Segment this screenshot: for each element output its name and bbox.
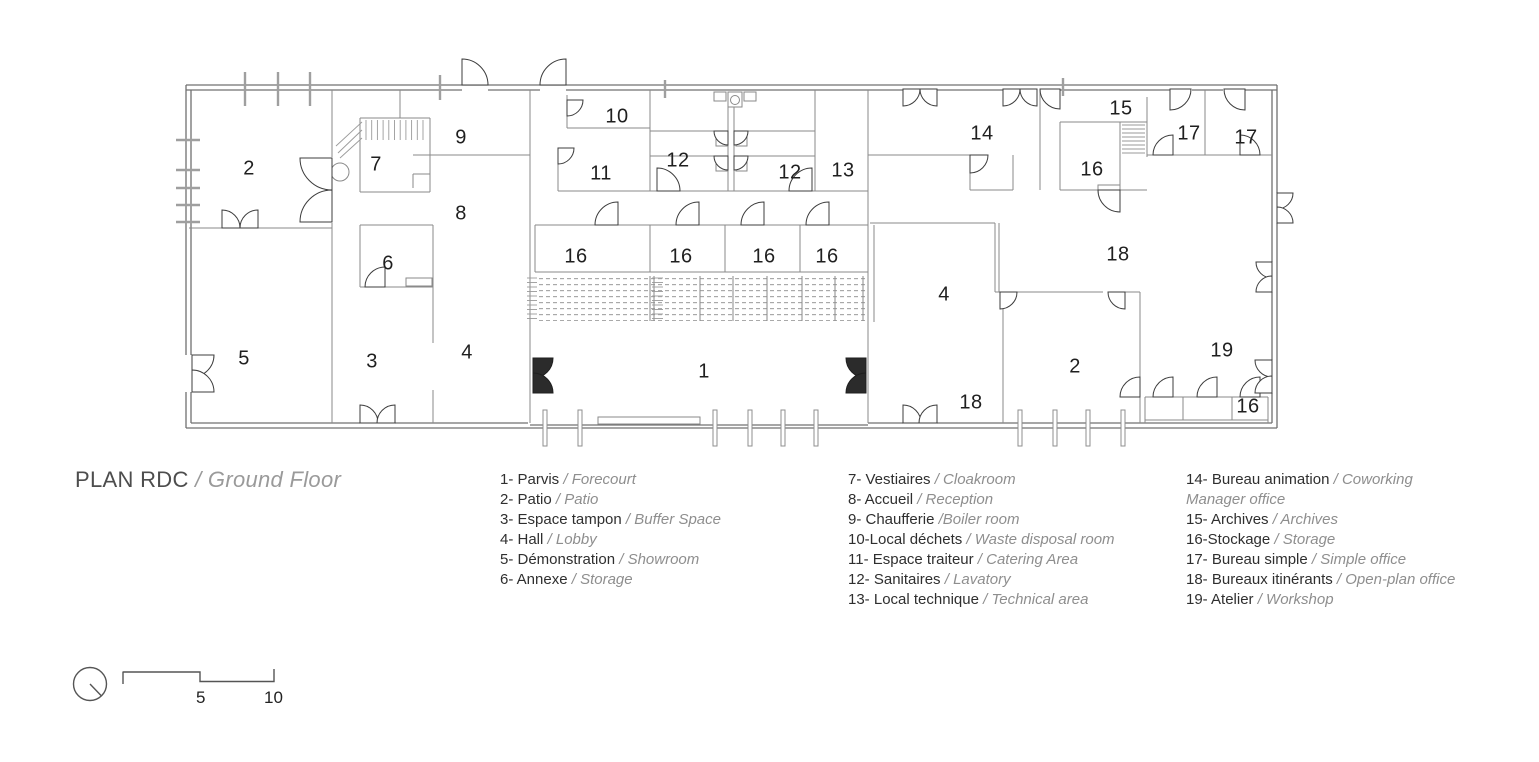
north-indicator-icon bbox=[74, 668, 107, 701]
title-french: PLAN RDC bbox=[75, 467, 189, 492]
title-english: Ground Floor bbox=[208, 467, 341, 492]
legend-item: 9- Chaufferie /Boiler room bbox=[848, 510, 1178, 530]
legend-item: 10-Local déchets / Waste disposal room bbox=[848, 530, 1178, 550]
legend-item-fr: 13- Local technique bbox=[848, 591, 979, 608]
page-title: PLAN RDC / Ground Floor bbox=[75, 467, 341, 493]
legend-item: 16-Stockage / Storage bbox=[1186, 530, 1516, 550]
legend-item: 19- Atelier / Workshop bbox=[1186, 590, 1516, 610]
legend-item-en: / Showroom bbox=[615, 551, 699, 568]
legend-item: 8- Accueil / Reception bbox=[848, 490, 1178, 510]
legend-item-en: / Storage bbox=[1270, 531, 1335, 548]
legend-item: 1- Parvis / Forecourt bbox=[500, 470, 830, 490]
title-separator: / bbox=[189, 467, 208, 492]
legend-item-en: /Boiler room bbox=[934, 511, 1019, 528]
graphic-scale: 5 10 bbox=[123, 669, 283, 707]
legend-item-fr: 14- Bureau animation bbox=[1186, 471, 1329, 488]
legend-item-en: / Open-plan office bbox=[1333, 571, 1456, 588]
legend-item: 13- Local technique / Technical area bbox=[848, 590, 1178, 610]
legend-item-fr: 19- Atelier bbox=[1186, 591, 1254, 608]
legend-item-en: / Reception bbox=[913, 491, 993, 508]
legend-item-en: / Waste disposal room bbox=[962, 531, 1114, 548]
legend-item-en: / Archives bbox=[1269, 511, 1338, 528]
legend-item-fr: 5- Démonstration bbox=[500, 551, 615, 568]
legend-item: 14- Bureau animation / Coworking Manager… bbox=[1186, 470, 1516, 510]
legend-item: 7- Vestiaires / Cloakroom bbox=[848, 470, 1178, 490]
floor-plan-page: 2798653410111212131616161611415161717184… bbox=[0, 0, 1539, 762]
legend-item-en: / Forecourt bbox=[559, 471, 636, 488]
legend-item-fr: 8- Accueil bbox=[848, 491, 913, 508]
legend-item: 5- Démonstration / Showroom bbox=[500, 550, 830, 570]
legend-item-fr: 11- Espace traiteur bbox=[848, 551, 974, 568]
legend-item-fr: 15- Archives bbox=[1186, 511, 1269, 528]
legend-item: 3- Espace tampon / Buffer Space bbox=[500, 510, 830, 530]
door-swings-layer bbox=[192, 59, 1293, 423]
legend-item: 2- Patio / Patio bbox=[500, 490, 830, 510]
glazed-facade-hatch bbox=[527, 276, 866, 321]
legend-item-fr: 12- Sanitaires bbox=[848, 571, 941, 588]
scale-bar: 5 10 bbox=[55, 650, 315, 740]
legend-item-en: / Workshop bbox=[1254, 591, 1334, 608]
legend-item-en: / Patio bbox=[552, 491, 599, 508]
legend-item: 17- Bureau simple / Simple office bbox=[1186, 550, 1516, 570]
legend-item: 12- Sanitaires / Lavatory bbox=[848, 570, 1178, 590]
legend-item: 18- Bureaux itinérants / Open-plan offic… bbox=[1186, 570, 1516, 590]
exterior-walls-layer bbox=[186, 85, 1277, 428]
legend-item-fr: 17- Bureau simple bbox=[1186, 551, 1308, 568]
stairs-layer bbox=[331, 120, 1145, 181]
legend-item-fr: 18- Bureaux itinérants bbox=[1186, 571, 1333, 588]
legend-item: 6- Annexe / Storage bbox=[500, 570, 830, 590]
legend-item-fr: 3- Espace tampon bbox=[500, 511, 622, 528]
scale-mid-label: 5 bbox=[196, 688, 205, 707]
legend-item-en: / Technical area bbox=[979, 591, 1089, 608]
legend-item: 11- Espace traiteur / Catering Area bbox=[848, 550, 1178, 570]
legend-item-fr: 4- Hall bbox=[500, 531, 543, 548]
floor-plan-drawing bbox=[170, 50, 1300, 460]
legend-item-en: / Lavatory bbox=[941, 571, 1011, 588]
legend-item-fr: 2- Patio bbox=[500, 491, 552, 508]
scale-end-label: 10 bbox=[264, 688, 283, 707]
legend-item-en: / Cloakroom bbox=[931, 471, 1016, 488]
legend-item-en: / Storage bbox=[568, 571, 633, 588]
legend-item-fr: 7- Vestiaires bbox=[848, 471, 931, 488]
legend-column-3: 14- Bureau animation / Coworking Manager… bbox=[1186, 470, 1516, 610]
legend-item: 4- Hall / Lobby bbox=[500, 530, 830, 550]
legend-item-fr: 10-Local déchets bbox=[848, 531, 962, 548]
fixtures-layer bbox=[406, 92, 1120, 424]
legend-item-fr: 9- Chaufferie bbox=[848, 511, 934, 528]
legend-item-fr: 6- Annexe bbox=[500, 571, 568, 588]
legend-item-en: / Simple office bbox=[1308, 551, 1406, 568]
legend-item: 15- Archives / Archives bbox=[1186, 510, 1516, 530]
legend-item-fr: 16-Stockage bbox=[1186, 531, 1270, 548]
legend-item-en: / Catering Area bbox=[974, 551, 1079, 568]
legend-item-fr: 1- Parvis bbox=[500, 471, 559, 488]
legend-column-1: 1- Parvis / Forecourt2- Patio / Patio3- … bbox=[500, 470, 830, 590]
legend-item-en: / Buffer Space bbox=[622, 511, 721, 528]
legend-item-en: / Lobby bbox=[543, 531, 596, 548]
legend-column-2: 7- Vestiaires / Cloakroom8- Accueil / Re… bbox=[848, 470, 1178, 610]
